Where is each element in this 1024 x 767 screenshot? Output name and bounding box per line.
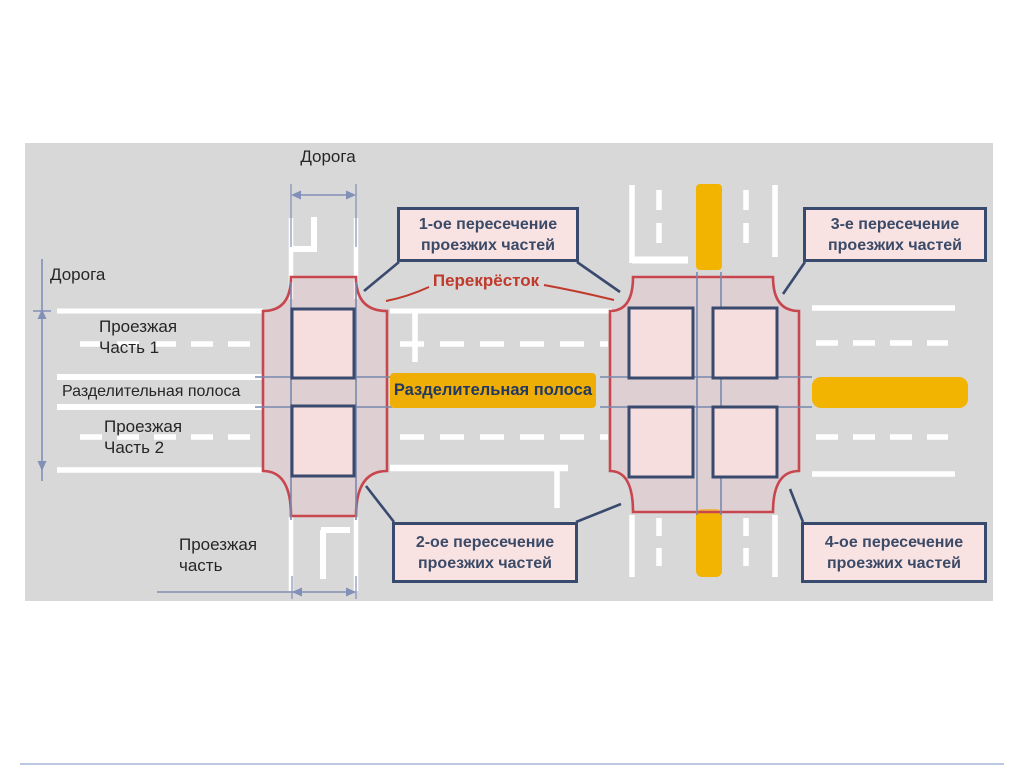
median-bar-horizontal-right	[812, 377, 968, 408]
label-carriageway-bottom: Проезжая часть	[179, 534, 271, 576]
slide: Дорога Дорога Проезжая Часть 1 Разделите…	[0, 0, 1024, 767]
label-road-top: Дорога	[282, 146, 374, 167]
callout-crossing-1: 1-ое пересечение проезжих частей	[397, 207, 579, 262]
median-bar-vertical-top	[696, 184, 722, 270]
left-crossing-bottom-square	[292, 406, 354, 476]
crossing-2-square	[629, 407, 693, 477]
slide-bottom-border	[20, 763, 1004, 765]
crossing-1-square	[629, 308, 693, 378]
label-carriageway-2: Проезжая Часть 2	[104, 416, 200, 458]
label-carriageway-1: Проезжая Часть 1	[99, 316, 195, 358]
crossing-4-square	[713, 407, 777, 477]
crossing-3-square	[713, 308, 777, 378]
median-bar-vertical-bottom	[696, 509, 722, 577]
callout-crossing-4: 4-ое пересечение проезжих частей	[801, 522, 987, 583]
callout-crossing-4-text: 4-ое пересечение проезжих частей	[804, 532, 984, 574]
callout-crossing-3-text: 3-е пересечение проезжих частей	[806, 214, 984, 256]
callout-crossing-1-text: 1-ое пересечение проезжих частей	[400, 214, 576, 256]
callout-crossing-3: 3-е пересечение проезжих частей	[803, 207, 987, 262]
label-median-center: Разделительная полоса	[394, 381, 592, 400]
callout-crossing-2-text: 2-ое пересечение проезжих частей	[395, 532, 575, 574]
callout-crossing-2: 2-ое пересечение проезжих частей	[392, 522, 578, 583]
label-road-left: Дорога	[50, 264, 105, 285]
median-center-label-bar: Разделительная полоса	[390, 373, 596, 408]
label-median-left: Разделительная полоса	[62, 381, 240, 402]
label-intersection: Перекрёсток	[428, 271, 544, 291]
left-crossing-top-square	[292, 309, 354, 378]
